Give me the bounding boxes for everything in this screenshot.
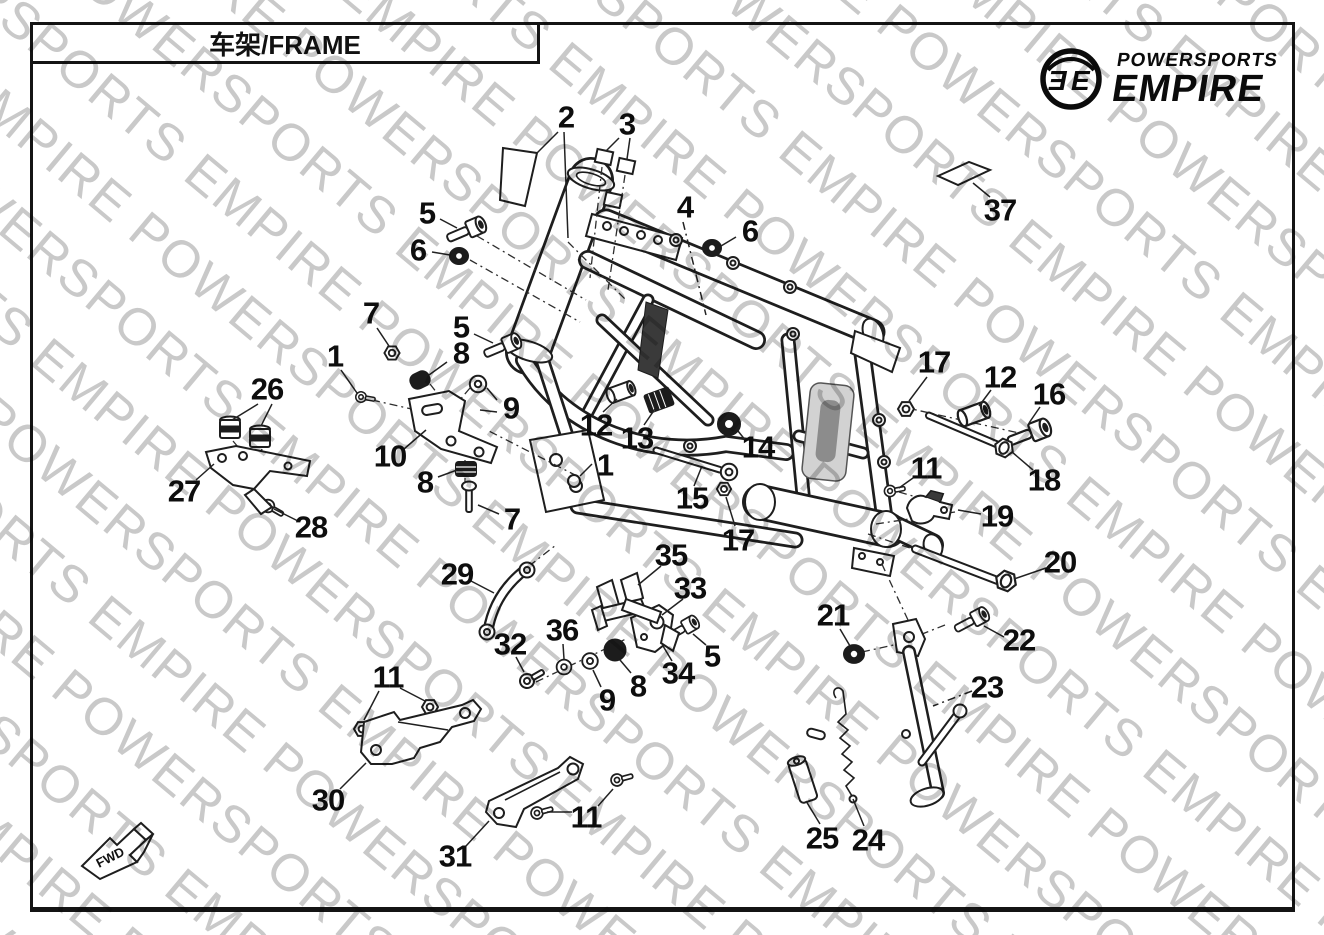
part-washer-9a — [470, 376, 486, 392]
part-bolt-22 — [952, 605, 991, 636]
part-damper-8a — [408, 369, 433, 392]
part-bolt-11c2 — [610, 770, 634, 787]
part-bolt-5a — [444, 215, 488, 246]
part-spring-24 — [834, 688, 857, 803]
hardware-parts — [206, 148, 1053, 827]
svg-text:E: E — [1071, 65, 1091, 96]
part-washer-36 — [557, 660, 572, 675]
part-washer-9b — [582, 653, 598, 669]
parts-diagram-page: FWD 235646377518926101213141171216182728… — [0, 0, 1324, 935]
part-bracket-19 — [907, 491, 952, 523]
part-nut-7a — [384, 346, 399, 359]
part-sticker-37 — [938, 162, 990, 185]
part-damper-8c — [604, 639, 626, 661]
part-nut-21 — [844, 645, 865, 664]
part-plate-2 — [500, 148, 537, 206]
part-bracket-10 — [409, 391, 497, 463]
part-bracket-35 — [592, 573, 661, 630]
part-nut-17b — [717, 483, 731, 495]
brand-logo: Ǝ E POWERSPORTS EMPIRE — [1038, 46, 1275, 112]
title-box: 车架/FRAME — [30, 22, 540, 64]
part-knurl-13 — [644, 387, 675, 414]
brand-name-bottom: EMPIRE — [1110, 71, 1277, 107]
part-bracket-30 — [361, 700, 481, 764]
part-bushing-26a — [220, 417, 240, 439]
part-damper-8b — [456, 462, 477, 477]
brand-emblem-icon: Ǝ E — [1038, 46, 1104, 112]
part-grommet-14 — [718, 413, 741, 436]
part-bracket-27 — [206, 446, 310, 514]
part-roller-25 — [787, 754, 818, 803]
part-rod-20 — [911, 545, 1019, 594]
page-title: 车架/FRAME — [209, 25, 361, 62]
part-nut-6b — [703, 240, 722, 257]
svg-text:Ǝ: Ǝ — [1048, 65, 1068, 96]
part-bushing-26b — [250, 426, 270, 448]
part-bolt-1a — [355, 391, 376, 405]
part-nut-6a — [450, 248, 469, 265]
part-ball-1b — [568, 475, 580, 487]
part-nut-17a — [898, 402, 914, 416]
part-bolt-7b — [462, 482, 476, 513]
part-sleeve-12b — [956, 401, 992, 428]
part-strap-29 — [480, 563, 535, 640]
part-pin — [806, 728, 825, 740]
frame-exploded-diagram: FWD — [0, 0, 1324, 935]
part-kickstand-23 — [893, 619, 967, 810]
fwd-arrow: FWD — [82, 823, 153, 879]
